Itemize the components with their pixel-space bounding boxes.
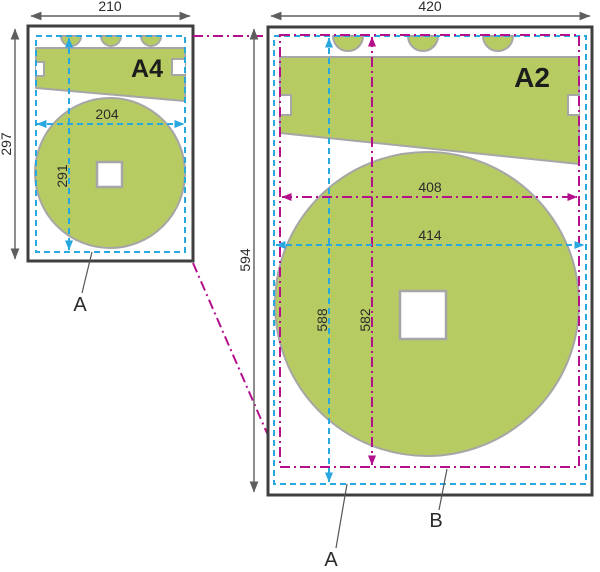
a2-height-dimension: 594 (237, 29, 254, 492)
a4-sheet: 210 297 A4 204 291 (0, 0, 193, 316)
a4-band-notch-left (36, 62, 44, 76)
a2-scaled-image-marker: B (429, 510, 442, 532)
a2-print-width-value: 414 (418, 227, 442, 243)
a2-print-height-value: 588 (314, 308, 330, 332)
a4-sheet-label: A4 (131, 55, 163, 83)
a2-width-dimension: 420 (271, 0, 590, 16)
a2-height-value: 594 (237, 248, 253, 272)
a2-scaled-height-value: 582 (357, 308, 373, 332)
a4-print-width-value: 204 (95, 106, 119, 122)
diagram-svg: 210 297 A4 204 291 (0, 0, 600, 572)
a2-width-value: 420 (418, 0, 442, 14)
a2-circle-hole (400, 291, 446, 339)
a4-print-height-value: 291 (54, 164, 70, 188)
a4-circle-hole (97, 162, 122, 187)
a4-height-value: 297 (0, 132, 14, 156)
a2-print-area-marker: A (324, 549, 338, 571)
a4-band-notch-right (172, 59, 185, 75)
a4-height-dimension: 297 (0, 29, 15, 259)
a4-width-dimension: 210 (31, 0, 190, 16)
a2-sheet: 420 594 A2 408 582 (237, 0, 592, 571)
a2-band-notch-right (568, 95, 579, 115)
a2-scaled-width-value: 408 (418, 179, 442, 195)
a4-print-area-marker: A (73, 294, 87, 316)
a2-sheet-label: A2 (514, 62, 550, 93)
a4-width-value: 210 (98, 0, 122, 14)
a2-band-notch-left (280, 95, 291, 115)
paper-scaling-diagram: 210 297 A4 204 291 (0, 0, 600, 572)
a2-print-area-callout: A (324, 484, 347, 571)
